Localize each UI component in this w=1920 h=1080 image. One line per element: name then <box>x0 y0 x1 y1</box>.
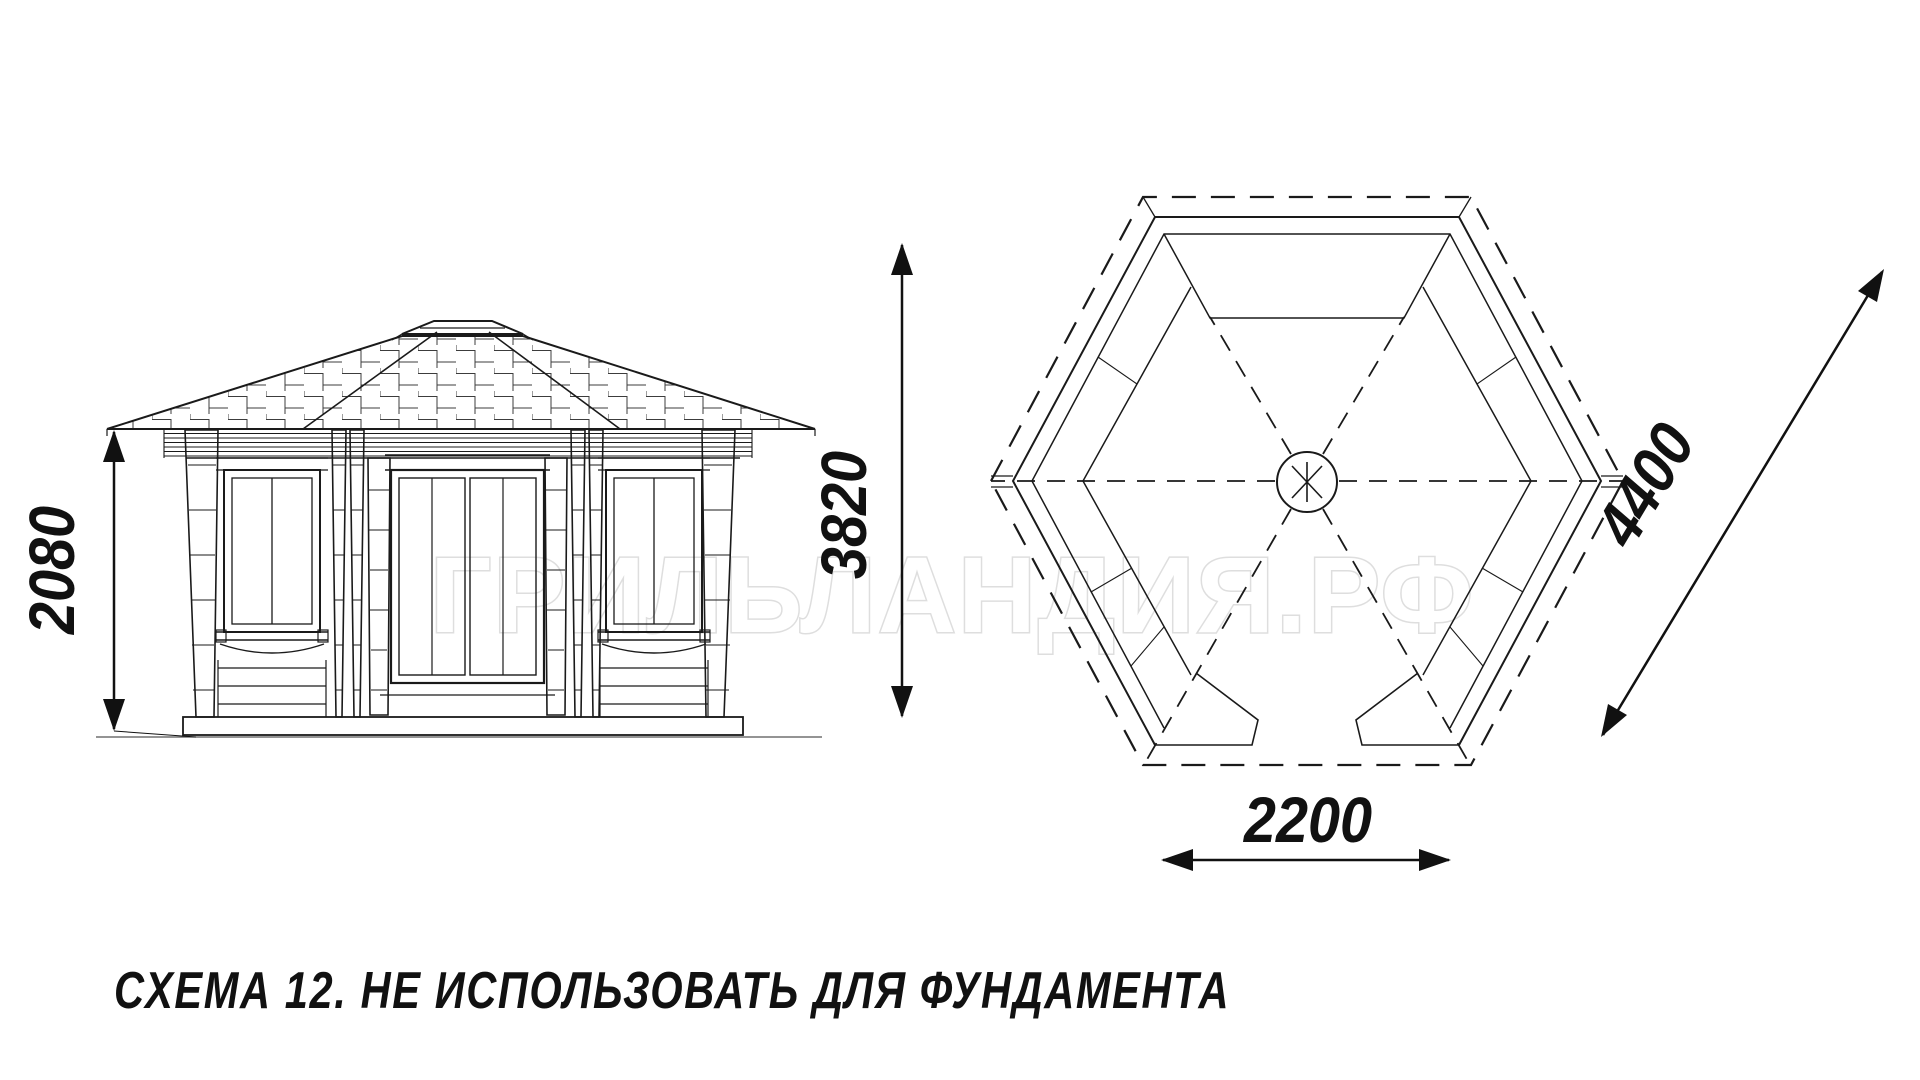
siding-left <box>218 660 326 717</box>
dimension-label-2080: 2080 <box>16 506 87 635</box>
arrowhead-right-icon <box>1419 849 1451 871</box>
gazebo-technical-drawing: ГРИЛЬЛАНДИЯ.РФ <box>0 0 1920 1080</box>
front-elevation-view <box>96 321 822 737</box>
watermark-text: ГРИЛЬЛАНДИЯ.РФ <box>430 534 1475 655</box>
dimension-label-2200: 2200 <box>1243 784 1372 855</box>
caption-text: СХЕМА 12. НЕ ИСПОЛЬЗОВАТЬ ДЛЯ ФУНДАМЕНТА <box>114 961 1230 1020</box>
arrowhead-left-icon <box>1161 849 1193 871</box>
dimension-label-3820: 3820 <box>808 451 879 579</box>
bench-end-caps <box>1155 673 1459 745</box>
dimension-diagonal-4400: 4400 <box>1580 269 1884 737</box>
arrowhead-up-icon <box>103 430 125 462</box>
plan-view <box>991 197 1623 765</box>
arrowhead-down-icon <box>891 686 913 718</box>
arrowhead-down-left-icon <box>1601 704 1627 737</box>
arrowhead-down-icon <box>103 699 125 731</box>
apron-swag <box>220 644 324 653</box>
arrowhead-up-icon <box>891 243 913 275</box>
window-left <box>216 458 328 717</box>
page: ГРИЛЬЛАНДИЯ.РФ <box>0 0 1920 1080</box>
fascia-band <box>164 429 752 458</box>
corner-posts <box>991 197 1623 487</box>
center-post-symbol <box>1277 452 1337 512</box>
base-plinth <box>96 717 822 737</box>
drawing-caption: СХЕМА 12. НЕ ИСПОЛЬЗОВАТЬ ДЛЯ ФУНДАМЕНТА <box>114 961 1230 1020</box>
bench-top <box>1164 234 1450 318</box>
siding-right <box>600 660 708 717</box>
arrowhead-up-right-icon <box>1858 269 1884 302</box>
dimension-entrance-2200: 2200 <box>1161 784 1451 871</box>
watermark: ГРИЛЬЛАНДИЯ.РФ <box>430 534 1475 655</box>
roof-shingles <box>107 336 815 429</box>
dimension-height-2080: 2080 <box>16 430 196 737</box>
